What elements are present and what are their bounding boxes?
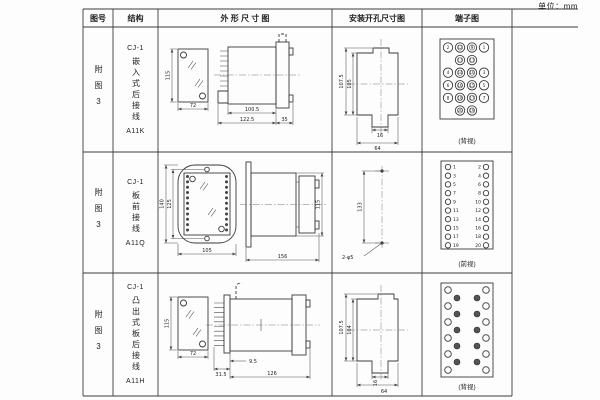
install-cell-row2: 133 2-φ5	[332, 152, 422, 273]
dim-front-height: 115	[166, 71, 172, 81]
install-cell-row3: 107.5 104 16 64	[332, 273, 422, 396]
dim-front-height: 140	[160, 199, 166, 209]
front-view: 140 125 105	[160, 165, 237, 256]
dim-front-width: 72	[190, 103, 196, 109]
dim-body-length: 126	[267, 371, 277, 377]
svg-text:12: 12	[457, 45, 463, 50]
side-view: 100.5 122.5 35	[214, 34, 300, 125]
outline-drawing-a11q: 140 125 105 156 115	[158, 152, 332, 273]
svg-text:14: 14	[475, 217, 481, 223]
dim-fin-depth: 31.5	[215, 372, 226, 378]
svg-text:4: 4	[478, 173, 481, 179]
structure-cell-row2: CJ-1 板前接线 A11Q	[113, 152, 158, 273]
header-structure: 结构	[113, 9, 158, 27]
dim-inner-height: 105	[347, 79, 353, 89]
header-install-dims: 安装开孔尺寸图	[332, 9, 422, 27]
outline-cell-row3: 115 72 9.5 31.5 126	[158, 273, 332, 396]
series-label: CJ-1	[127, 179, 144, 186]
svg-text:13: 13	[453, 217, 459, 223]
dim-gap: 9.5	[249, 359, 257, 365]
svg-text:18: 18	[475, 234, 481, 240]
dim-outer-height: 107.5	[339, 320, 345, 334]
side-view: 156 115	[240, 162, 326, 262]
svg-text:11: 11	[469, 58, 475, 63]
svg-text:17: 17	[469, 95, 475, 100]
dim-total-length: 122.5	[240, 117, 254, 123]
terminal-view-caption: (背视)	[458, 135, 475, 145]
svg-text:1: 1	[453, 165, 456, 171]
svg-text:11: 11	[453, 208, 459, 214]
dim-outer-height: 107.5	[339, 74, 345, 88]
header-figure-no: 图号	[83, 9, 113, 27]
svg-text:16: 16	[457, 83, 463, 88]
svg-text:16: 16	[475, 226, 481, 232]
svg-text:20: 20	[457, 108, 463, 113]
terminal-diagram-a11q: 1234567891011121314151617181920	[422, 157, 512, 257]
svg-text:14: 14	[457, 70, 463, 75]
svg-text:12: 12	[475, 208, 481, 214]
outline-cell-row1: 115 72 100.5 122.5 35	[158, 27, 332, 152]
svg-text:3: 3	[453, 173, 456, 179]
header-terminal-diagram: 端子图	[422, 9, 512, 27]
dim-hole-spacing: 133	[358, 202, 364, 212]
figure-no-cell-row3: 附图3	[83, 273, 113, 396]
svg-text:7: 7	[453, 191, 456, 197]
dim-slot-width: 16	[377, 133, 383, 139]
dim-front-height: 115	[165, 319, 171, 329]
structure-label: 凸出式板后接线	[132, 296, 140, 373]
dim-flange-width: 35	[281, 117, 287, 123]
figure-no-cell-row2: 附图3	[83, 152, 113, 273]
svg-text:6: 6	[447, 83, 450, 88]
outline-cell-row2: 140 125 105 156 115	[158, 152, 332, 273]
figure-no: 附图3	[94, 65, 102, 114]
install-drawing-a11h: 107.5 104 16 64	[332, 273, 422, 396]
terminal-diagram-a11k: 2129113114141036161558181772019	[422, 34, 512, 134]
svg-text:15: 15	[469, 83, 475, 88]
dim-front-width: 72	[190, 351, 196, 357]
terminal-cell-row3: (背视)	[422, 273, 512, 396]
terminal-cell-row2: 1234567891011121314151617181920 (前视)	[422, 152, 512, 273]
svg-text:8: 8	[478, 191, 481, 197]
dim-front-width: 105	[202, 248, 212, 254]
svg-text:4: 4	[447, 70, 450, 75]
dim-side-height: 115	[316, 200, 322, 210]
hole-callout: 2-φ5	[342, 255, 353, 261]
terminal-view-caption: (前视)	[458, 258, 475, 268]
figure-no: 附图3	[94, 188, 102, 237]
svg-text:19: 19	[469, 108, 475, 113]
terminal-cell-row1: 2129113114141036161558181772019 (背视)	[422, 27, 512, 152]
model-label: A11Q	[126, 240, 145, 247]
dim-total-width: 64	[381, 389, 387, 395]
dim-body-length: 100.5	[245, 107, 259, 113]
structure-label: 板前接线	[132, 191, 140, 235]
spec-sheet-page: { "unit": "单位：mm", "table": { "headers":…	[0, 0, 600, 400]
svg-text:1: 1	[483, 45, 486, 50]
svg-text:5: 5	[453, 182, 456, 188]
svg-text:17: 17	[453, 234, 459, 240]
outline-drawing-a11h: 115 72 9.5 31.5 126	[158, 273, 332, 396]
side-view: 9.5 31.5 126	[206, 283, 320, 379]
svg-text:19: 19	[453, 243, 459, 249]
svg-text:9: 9	[453, 199, 456, 205]
header-outline-dims: 外 形 尺 寸 图	[158, 9, 332, 27]
series-label: CJ-1	[127, 284, 144, 291]
structure-cell-row3: CJ-1 凸出式板后接线 A11H	[113, 273, 158, 396]
svg-text:6: 6	[478, 182, 481, 188]
svg-text:13: 13	[457, 58, 463, 63]
terminal-view-caption: (背视)	[458, 381, 475, 391]
figure-no-cell-row1: 附图3	[83, 27, 113, 152]
front-view: 115 72	[165, 297, 209, 359]
svg-text:15: 15	[453, 226, 459, 232]
dim-side-length: 156	[278, 254, 288, 260]
svg-text:20: 20	[475, 243, 481, 249]
svg-text:2: 2	[447, 45, 450, 50]
install-cell-row1: 107.5 105 16 64	[332, 27, 422, 152]
outline-drawing-a11k: 115 72 100.5 122.5 35	[158, 27, 332, 152]
svg-text:8: 8	[447, 95, 450, 100]
model-label: A11K	[126, 128, 145, 135]
terminal-diagram-a11h	[422, 278, 512, 380]
svg-text:10: 10	[475, 199, 481, 205]
svg-text:10: 10	[469, 70, 475, 75]
svg-text:5: 5	[483, 83, 486, 88]
svg-text:2: 2	[478, 165, 481, 171]
structure-label: 嵌入式后接线	[132, 57, 140, 123]
series-label: CJ-1	[127, 45, 144, 52]
figure-no: 附图3	[94, 310, 102, 359]
install-drawing-a11q: 133 2-φ5	[332, 152, 422, 273]
dim-hole-span: 125	[167, 199, 173, 209]
install-drawing-a11k: 107.5 105 16 64	[332, 27, 422, 152]
model-label: A11H	[126, 378, 145, 385]
svg-text:3: 3	[483, 70, 486, 75]
svg-text:7: 7	[483, 95, 486, 100]
svg-text:9: 9	[471, 45, 474, 50]
dim-inner-height: 104	[347, 325, 353, 335]
structure-cell-row1: CJ-1 嵌入式后接线 A11K	[113, 27, 158, 152]
svg-text:18: 18	[457, 95, 463, 100]
front-view: 115 72	[166, 49, 209, 111]
